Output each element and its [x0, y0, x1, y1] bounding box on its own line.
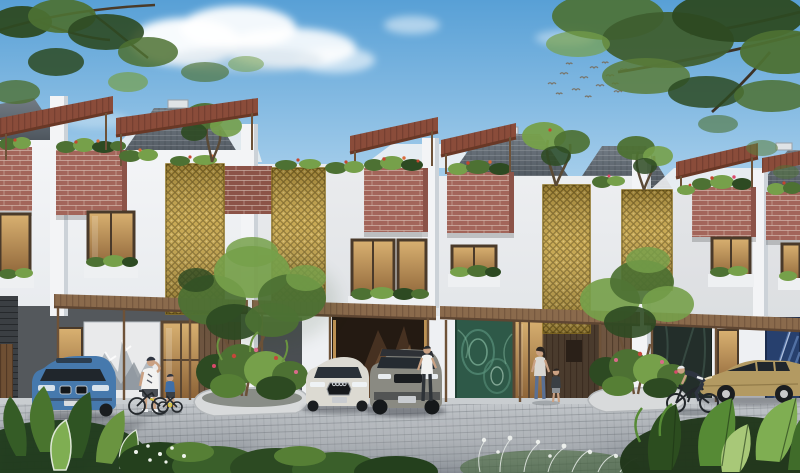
window-planter: [84, 255, 138, 278]
headlight: [378, 374, 391, 379]
window: [708, 238, 754, 287]
top: [534, 357, 546, 377]
brick-box: [364, 156, 428, 237]
window-planter: [708, 266, 754, 287]
license-plate: [332, 397, 347, 403]
kidney-grille: [60, 386, 71, 394]
tee-shirt: [141, 368, 159, 389]
headlight: [352, 382, 367, 387]
wheel: [100, 404, 113, 417]
wheel: [357, 401, 368, 412]
wheel: [308, 401, 319, 412]
license-plate: [398, 396, 416, 403]
child-top: [551, 376, 561, 388]
windshield: [314, 367, 362, 378]
window: [348, 240, 430, 310]
suv-grille: [394, 374, 422, 383]
wall-box: [566, 340, 582, 362]
window: [448, 246, 501, 287]
scene: [0, 0, 800, 473]
kidney-grille: [76, 386, 87, 394]
shirt: [421, 355, 433, 375]
wheel: [373, 400, 388, 415]
windshield: [40, 369, 106, 381]
mural-green-malachite: [456, 318, 514, 402]
rendering-canvas: [0, 0, 800, 473]
car-roof: [56, 358, 92, 363]
brick-box: [766, 181, 800, 245]
headlight: [92, 385, 109, 391]
headlight: [310, 382, 325, 387]
kid-shirt: [165, 381, 175, 392]
wheel-hub: [780, 390, 788, 398]
brick-box: [222, 166, 272, 214]
window: [778, 244, 800, 290]
wheel-hub: [722, 390, 730, 398]
skylight-vent: [776, 143, 792, 150]
brick-box: [0, 137, 32, 216]
window-planter: [448, 265, 501, 287]
window: [84, 212, 138, 278]
brick-box: [447, 160, 514, 238]
brick-box: [56, 138, 127, 220]
brick-box: [692, 175, 756, 242]
window: [0, 214, 34, 288]
window-planter: [0, 268, 34, 288]
skylight-vent: [168, 100, 188, 108]
wheel: [425, 400, 440, 415]
